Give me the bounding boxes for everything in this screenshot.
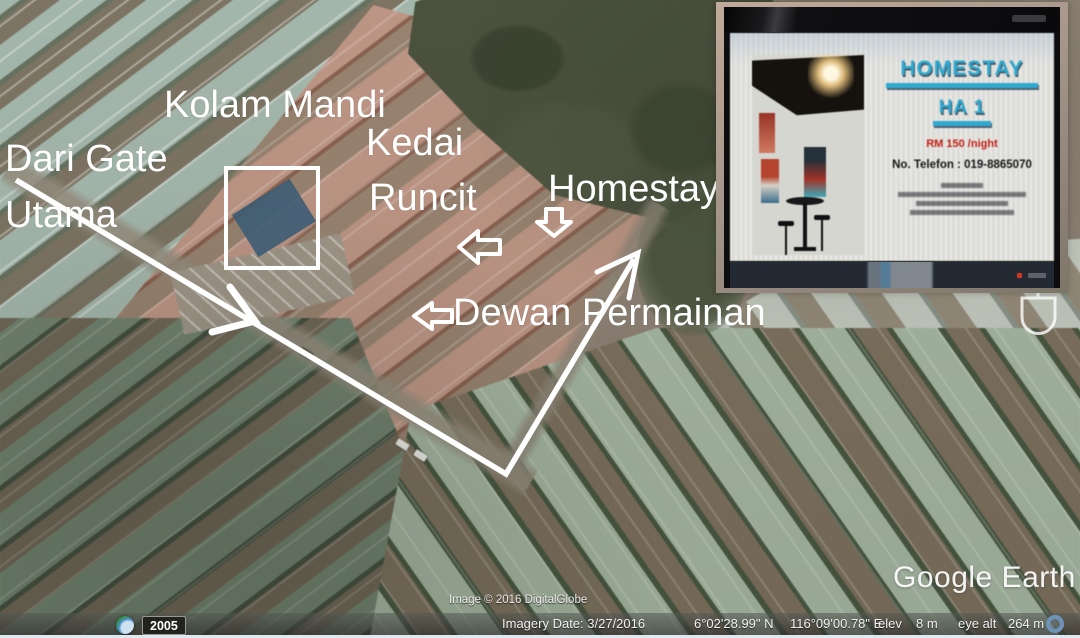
flyer-address-line xyxy=(941,183,983,188)
streaming-indicator-icon xyxy=(1046,615,1064,633)
room-poster xyxy=(804,147,826,197)
eye-alt-label: eye alt xyxy=(958,616,996,631)
label-dewan-permainan: Dewan Permainan xyxy=(453,294,766,334)
flyer-address-line xyxy=(898,192,1026,197)
flyer-title: HOMESTAY xyxy=(878,57,1046,81)
label-dari-gate: Dari Gate xyxy=(5,140,168,180)
historical-imagery-clock-icon[interactable] xyxy=(116,616,134,634)
monitor-taskbar xyxy=(730,262,1054,288)
longitude-readout: 116°09'00.78" E xyxy=(790,616,882,631)
flyer-title-underline xyxy=(886,83,1038,88)
taskbar-red-indicator xyxy=(1017,273,1022,278)
flyer-text-block: HOMESTAY HA 1 RM 150 /night No. Telefon … xyxy=(878,57,1046,257)
google-earth-viewport: Kolam Mandi Kedai Runcit Dari Gate Utama… xyxy=(0,0,1080,638)
swimming-pool xyxy=(232,179,316,257)
room-light xyxy=(808,55,854,101)
label-kedai: Kedai xyxy=(366,124,463,164)
flyer-price: RM 150 /night xyxy=(878,138,1046,150)
dewan-permainan-left-block-arrow xyxy=(414,303,452,329)
stool-leg xyxy=(785,225,787,255)
monitor: HOMESTAY HA 1 RM 150 /night No. Telefon … xyxy=(724,7,1060,288)
bar-table-leg xyxy=(803,203,807,249)
flyer-phone: No. Telefon : 019-8865070 xyxy=(878,159,1046,171)
bar-table-base xyxy=(794,247,816,251)
label-kolam-mandi: Kolam Mandi xyxy=(164,86,386,126)
flyer-subtitle: HA 1 xyxy=(878,97,1046,119)
imagery-date: Imagery Date: 3/27/2016 xyxy=(502,616,645,631)
kedai-runcit-left-block-arrow xyxy=(459,231,500,263)
imagery-attribution: Image © 2016 DigitalGlobe xyxy=(449,594,587,606)
elev-label: elev xyxy=(878,616,902,631)
flyer-address-line xyxy=(916,201,1008,206)
google-earth-watermark: Google Earth xyxy=(893,561,1076,595)
taskbar-clock-area xyxy=(1028,273,1046,278)
label-homestay: Homestay xyxy=(548,170,719,210)
room-photo xyxy=(752,55,864,255)
label-runcit: Runcit xyxy=(369,179,477,219)
latitude-readout: 6°02'28.99" N xyxy=(694,616,774,631)
imagery-year-text: 2005 xyxy=(150,619,178,633)
flyer-subtitle-underline xyxy=(933,121,991,126)
homestay-down-block-arrow xyxy=(537,209,571,236)
monitor-brand-logo xyxy=(1012,15,1046,22)
label-utama: Utama xyxy=(5,196,117,236)
eye-alt-value: 264 m xyxy=(1008,616,1044,631)
imagery-year-badge[interactable]: 2005 xyxy=(142,616,186,635)
room-poster xyxy=(759,113,775,153)
monitor-bezel xyxy=(724,7,1060,32)
monitor-screen: HOMESTAY HA 1 RM 150 /night No. Telefon … xyxy=(730,33,1054,261)
flyer-address-line xyxy=(910,210,1014,215)
inset-flyer-photo: HOMESTAY HA 1 RM 150 /night No. Telefon … xyxy=(716,2,1068,293)
room-poster xyxy=(761,159,779,203)
elev-value: 8 m xyxy=(916,616,938,631)
stool-leg xyxy=(821,219,823,251)
